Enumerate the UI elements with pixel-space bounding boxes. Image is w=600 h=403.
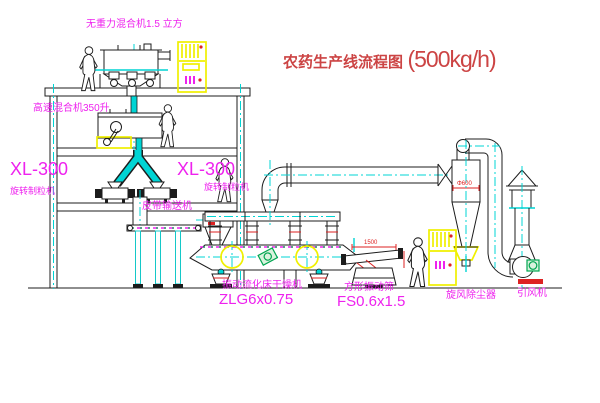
label-cyclone: 旋风除尘器: [446, 291, 496, 301]
induced-draft-fan: [510, 257, 543, 285]
diagram-title: 农药生产线流程图 (500kg/h): [283, 46, 496, 73]
label-granulator-left-name: 旋转制粒机: [10, 187, 55, 196]
dim-sieve-length: 1500: [364, 240, 377, 246]
person-ground: [408, 238, 427, 287]
rotary-granulator-left: [95, 182, 135, 203]
label-granulator-mid-name: 旋转制粒机: [204, 183, 249, 192]
control-cabinet-top: [178, 42, 206, 92]
title-capacity: (500kg/h): [407, 46, 495, 72]
cad-flow-diagram: 农药生产线流程图 (500kg/h) 无重力混合机1.5 立方 高速混合机350…: [0, 0, 600, 403]
person-roof: [80, 47, 97, 91]
label-fluid-bed-dryer-model: ZLG6x0.75: [219, 292, 293, 307]
label-fluid-bed-dryer: 振动流化床干燥机: [222, 281, 302, 291]
label-granulator-left-model: XL-300: [10, 160, 68, 178]
label-induced-draft-fan: 引风机: [517, 289, 547, 299]
label-vibrating-sieve: 方形振动筛: [344, 283, 394, 293]
label-gravity-mixer: 无重力混合机1.5 立方: [86, 20, 183, 30]
dim-cyclone-diameter: Φ600: [457, 181, 472, 187]
label-belt-conveyor: 皮带输送机: [142, 202, 192, 212]
label-high-speed-mixer: 高速混合机350升: [33, 104, 110, 114]
label-granulator-mid-model: XL-300: [177, 160, 235, 178]
control-cabinet-bottom: [429, 230, 456, 285]
label-vibrating-sieve-model: FS0.6x1.5: [337, 294, 405, 309]
belt-conveyor: [127, 225, 201, 288]
title-text: 农药生产线流程图: [283, 54, 403, 71]
